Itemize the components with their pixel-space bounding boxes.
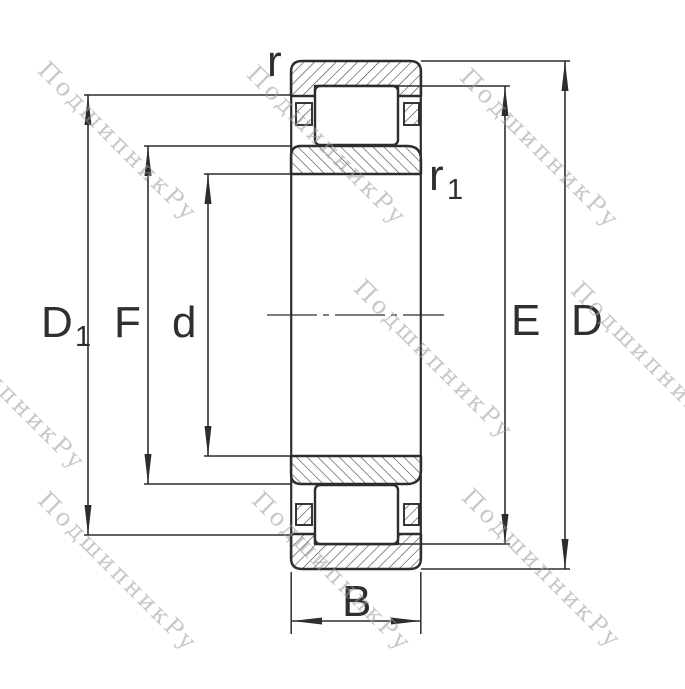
arrow-B-right <box>391 618 421 625</box>
roller-bottom <box>315 485 398 544</box>
diagram-canvas: r r 1 D 1 F d E D B ПодшипникРу Подшипни… <box>0 0 685 689</box>
label-r1-sub: 1 <box>447 174 463 206</box>
arrow-D-up <box>562 61 569 91</box>
label-r: r <box>267 37 282 86</box>
label-B: B <box>342 577 371 626</box>
cage-top-right <box>404 103 419 125</box>
label-D1-sub: 1 <box>75 321 91 353</box>
arrow-d-down <box>205 426 212 456</box>
inner-ring-top-section <box>291 146 421 174</box>
arrow-D1-up <box>85 95 92 125</box>
arrow-F-down <box>145 454 152 484</box>
arrow-d-up <box>205 174 212 204</box>
bearing-cross-section-drawing: r r 1 D 1 F d E D B <box>0 0 685 689</box>
cage-top-left <box>296 103 312 125</box>
inner-ring-bottom-section <box>291 456 421 484</box>
label-D1-base: D <box>41 298 73 347</box>
arrow-D1-down <box>85 505 92 535</box>
arrow-B-left <box>292 618 322 625</box>
label-d: d <box>172 298 196 347</box>
arrow-E-up <box>502 86 509 116</box>
label-E: E <box>511 296 540 345</box>
roller-top <box>315 86 398 145</box>
arrow-F-up <box>145 146 152 176</box>
arrow-D-down <box>562 539 569 569</box>
arrow-E-down <box>502 514 509 544</box>
label-D: D <box>571 296 603 345</box>
cage-bottom-left <box>296 504 312 525</box>
cage-bottom-right <box>404 504 419 525</box>
label-r1-base: r <box>429 151 444 200</box>
label-F: F <box>114 298 141 347</box>
